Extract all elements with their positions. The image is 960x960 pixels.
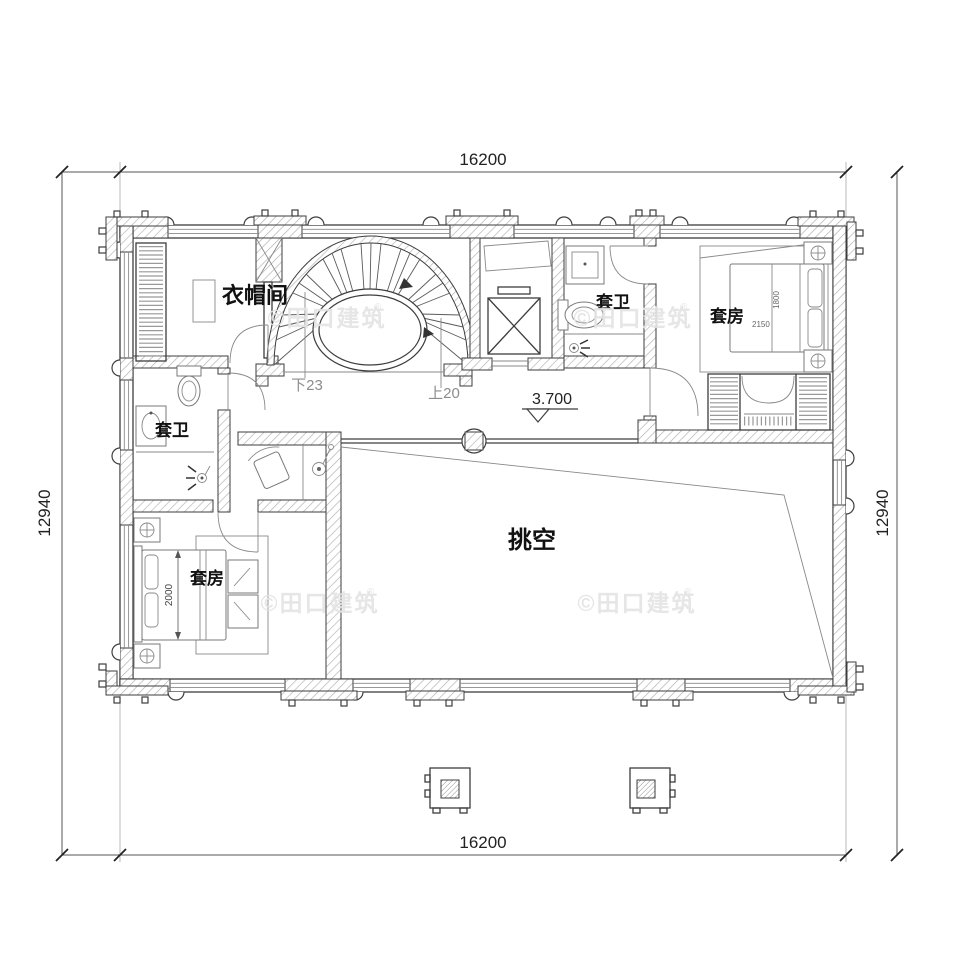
floor-plan-canvas: 16200 16200 12940 12940 xyxy=(0,0,960,960)
stair-up-label: 上20 xyxy=(428,385,460,402)
toilet xyxy=(177,366,201,376)
dim-right: 12940 xyxy=(873,489,892,536)
watermark: ©田口建筑 xyxy=(578,590,697,616)
label-void: 挑空 xyxy=(508,526,556,554)
watermark-reg: ® xyxy=(684,587,692,598)
label-suite-left: 套房 xyxy=(189,568,224,588)
watermark-reg: ® xyxy=(367,587,375,598)
watermark-reg: ® xyxy=(374,302,382,313)
watermark: ©田口建筑 xyxy=(261,590,380,616)
elevation-value: 3.700 xyxy=(532,391,572,408)
bed-width-dim: 1800 xyxy=(772,291,781,309)
stair-down-label: 下23 xyxy=(291,377,323,394)
bed xyxy=(142,550,226,640)
label-bath-left: 套卫 xyxy=(154,420,189,440)
watermark: ©田口建筑 xyxy=(574,305,693,331)
bed-length-dim: 2150 xyxy=(752,320,770,329)
watermark-reg: ® xyxy=(680,302,688,313)
dim-left: 12940 xyxy=(35,489,54,536)
dim-bottom: 16200 xyxy=(459,833,506,852)
dim-top: 16200 xyxy=(459,150,506,169)
label-suite-right: 套房 xyxy=(709,306,744,326)
watermark: ©田口建筑 xyxy=(268,305,387,331)
bed-dim: 2000 xyxy=(164,583,175,606)
paper-background xyxy=(0,0,960,960)
